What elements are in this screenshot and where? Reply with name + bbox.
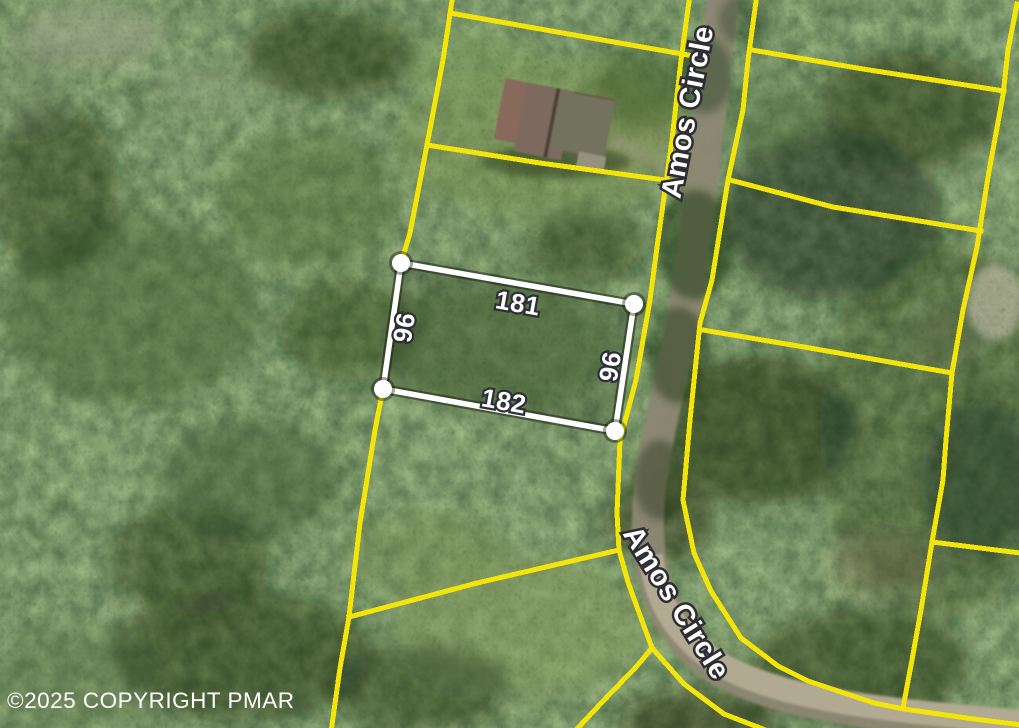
parcel-corner-marker xyxy=(606,422,624,440)
parcel-corner-marker xyxy=(374,380,392,398)
copyright-watermark: ©2025 COPYRIGHT PMAR xyxy=(7,688,295,713)
dimension-label-right: 96 xyxy=(593,350,627,384)
parcel-corner-marker xyxy=(392,254,410,272)
aerial-map-stage: 181 96 96 182 Amos Circle Amos Circle ©2… xyxy=(0,0,1019,728)
parcel-corner-marker xyxy=(625,295,643,313)
aerial-map: 181 96 96 182 Amos Circle Amos Circle ©2… xyxy=(0,0,1019,728)
dimension-label-left: 96 xyxy=(387,311,421,345)
